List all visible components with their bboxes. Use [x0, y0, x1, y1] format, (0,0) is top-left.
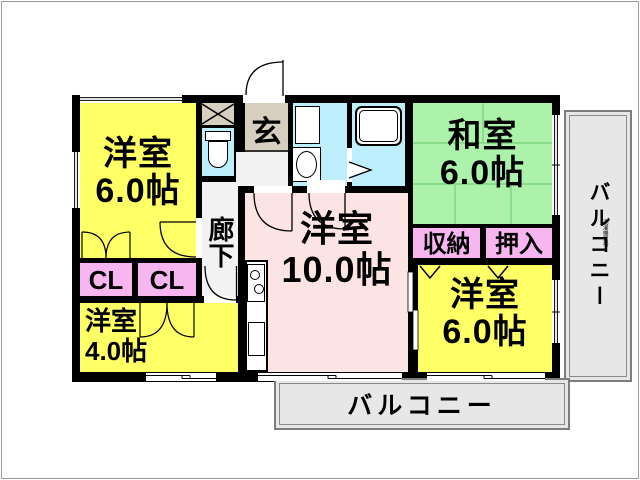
washing-machine-label: 洗濯機置場 [596, 216, 612, 249]
room-tl-area: 6.0帖 [80, 173, 196, 210]
room-tl-name: 洋室 [80, 136, 196, 173]
washbasin-bowl-icon [296, 151, 317, 178]
room-japanese-area: 6.0帖 [413, 155, 552, 192]
room-living-area: 10.0帖 [266, 249, 408, 290]
room-br-area: 6.0帖 [418, 314, 552, 351]
room-japanese-name: 和室 [413, 118, 552, 155]
room-br-name: 洋室 [418, 277, 552, 314]
room-bl-name: 洋室 [85, 306, 205, 336]
shunou-label: 収納 [413, 230, 480, 260]
room-br-label: 洋室 6.0帖 [418, 277, 552, 351]
entry-hall [236, 152, 288, 186]
closet-left-label: CL [80, 265, 132, 295]
room-bl-area: 4.0帖 [85, 336, 205, 366]
bathtub-icon [355, 106, 402, 146]
room-tl-label: 洋室 6.0帖 [80, 136, 196, 210]
toilet-tank-icon [205, 131, 231, 141]
floor-plan: バルコニー バルコニー 洗濯機置場 [0, 0, 640, 480]
pipe-space-box [202, 103, 234, 125]
oshiire-label: 押入 [486, 230, 552, 260]
room-living-label: 洋室 10.0帖 [266, 208, 408, 290]
kitchen-sink [248, 322, 265, 356]
closet-right-label: CL [138, 265, 196, 295]
room-living-name: 洋室 [266, 208, 408, 249]
toilet-bowl-icon [208, 141, 228, 168]
stove-burner-icon [254, 284, 264, 294]
bathtub-inner-line [359, 110, 398, 142]
stove-burner-icon [250, 270, 260, 280]
room-bl-label: 洋室 4.0帖 [85, 306, 205, 366]
washing-machine-space: 洗濯機置場 [295, 106, 320, 144]
balcony-bottom-inner-line [279, 383, 565, 425]
balcony-bottom: バルコニー [274, 378, 570, 430]
genkan-label: 玄 [245, 107, 288, 151]
room-japanese-label: 和室 6.0帖 [413, 118, 552, 192]
corridor-label: 廊下 [202, 186, 238, 298]
